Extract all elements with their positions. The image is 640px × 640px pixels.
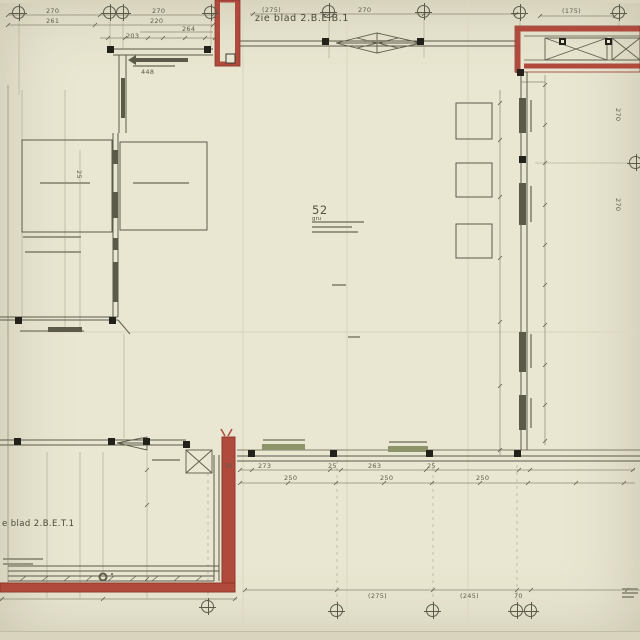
dimension-label: 264 — [182, 25, 195, 33]
sheet-reference-bottom: e blad 2.B.E.T.1 — [2, 519, 74, 529]
dimension-label: 250 — [380, 474, 393, 482]
dimension-label: 270 — [614, 108, 622, 121]
room-label: 52 gru — [312, 203, 328, 222]
sheet-reference-top: zie blad 2.B.E.B.1 — [255, 13, 349, 24]
dimension-label: (175) — [562, 7, 581, 15]
dimension-label: 250 — [476, 474, 489, 482]
dimension-label: 261 — [46, 17, 59, 25]
dimension-label: 448 — [141, 68, 154, 76]
dimension-label: 270 — [46, 7, 59, 15]
dimension-label: (245) — [460, 592, 479, 600]
paper-edge-bottom — [0, 631, 640, 640]
dimension-label: 25 — [75, 170, 83, 179]
dimension-label: (275) — [368, 592, 387, 600]
dimension-label: 273 — [258, 462, 271, 470]
dimension-label: 25 — [427, 462, 436, 470]
dimension-label: 270 — [614, 198, 622, 211]
room-number: 52 — [312, 203, 328, 217]
dimension-label: 70 — [514, 592, 523, 600]
dimension-label: 70 — [224, 462, 233, 470]
dimension-label: 270 — [358, 6, 371, 14]
dimension-label: 220 — [150, 17, 163, 25]
dimension-label: 250 — [284, 474, 297, 482]
dimension-label: 25 — [328, 462, 337, 470]
dimension-label-layer: 270261270220264203(275)270(175)448270270… — [0, 0, 640, 640]
dimension-label: 263 — [368, 462, 381, 470]
floorplan-sheet: 270261270220264203(275)270(175)448270270… — [0, 0, 640, 640]
dimension-label: 203 — [126, 32, 139, 40]
dimension-label: 270 — [152, 7, 165, 15]
